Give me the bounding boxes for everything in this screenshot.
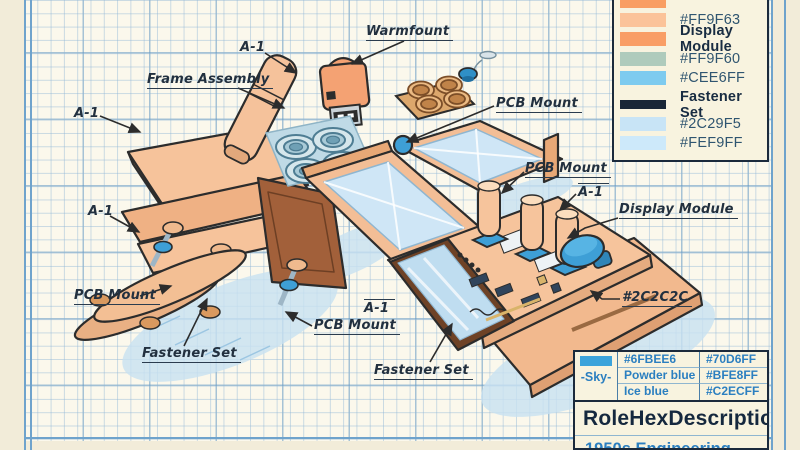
legend-row: Display Module — [620, 30, 767, 49]
label-a1-top: A-1 — [240, 40, 265, 55]
label-a1-right: A-1 — [578, 183, 609, 200]
table-cell: #BFE8FF — [700, 368, 767, 384]
legend-row: #FEF9FF — [620, 134, 767, 153]
sky-color-table: -Sky- #6FBEE6 #70D6FF Powder blue #BFE8F… — [573, 350, 769, 450]
legend-row: #CEE6FF — [620, 69, 767, 88]
legend-row: Fastener Set — [620, 95, 767, 114]
label-a1-left-lower: A-1 — [88, 204, 113, 219]
label-a1-left-upper: A-1 — [74, 106, 99, 121]
table-cell: Ice blue — [618, 384, 700, 400]
color-swatch — [620, 52, 666, 66]
color-swatch — [620, 117, 666, 131]
label-pcb-mount-center: PCB Mount — [314, 318, 400, 335]
color-swatch — [620, 100, 666, 109]
color-swatch — [620, 71, 666, 85]
label-display-module: Display Module — [619, 202, 738, 219]
label-pcb-mount-left: PCB Mount — [74, 288, 160, 305]
color-swatch — [620, 0, 666, 8]
sky-role-cell: -Sky- — [575, 352, 618, 400]
label-pcb-mount-upper-right: PCB Mount — [496, 96, 582, 113]
legend-label: #FEF9FF — [680, 135, 743, 151]
cups-board — [396, 77, 474, 120]
sky-role-label: -Sky- — [581, 370, 612, 384]
tiny-pot-and-dish — [459, 52, 496, 83]
label-warmfount: Warmfount — [366, 24, 453, 41]
table-caption: 1950s Engineering Draft — [575, 436, 767, 450]
color-swatch — [620, 136, 666, 150]
table-cell: #C2ECFF — [700, 384, 767, 400]
table-cell: Powder blue — [618, 368, 700, 384]
color-legend-panel: #FF9F63 Display Module #FF9F60 #CEE6FF F… — [612, 0, 769, 162]
table-cell: #6FBEE6 — [618, 352, 700, 368]
sky-swatch — [580, 356, 612, 366]
blueprint-page: A-1 Warmfount Frame Assembly A-1 A-1 PCB… — [0, 0, 800, 450]
legend-label: #2C29F5 — [680, 116, 741, 132]
label-a1-center: A-1 — [364, 299, 395, 316]
legend-label: #CEE6FF — [680, 70, 745, 86]
label-fastener-set-center: Fastener Set — [374, 363, 473, 380]
label-hex-2c2c2c: #2C2C2C — [622, 290, 692, 307]
table-header: RoleHexDescription — [575, 402, 767, 436]
color-swatch — [620, 32, 666, 46]
legend-label: #FF9F60 — [680, 51, 740, 67]
sky-table-grid: -Sky- #6FBEE6 #70D6FF Powder blue #BFE8F… — [575, 352, 767, 402]
label-fastener-set-left: Fastener Set — [142, 346, 241, 363]
table-cell: #70D6FF — [700, 352, 767, 368]
label-pcb-mount-right: PCB Mount — [525, 161, 611, 178]
color-swatch — [620, 13, 666, 27]
label-frame-assembly: Frame Assembly — [147, 72, 273, 89]
legend-row — [620, 0, 767, 10]
